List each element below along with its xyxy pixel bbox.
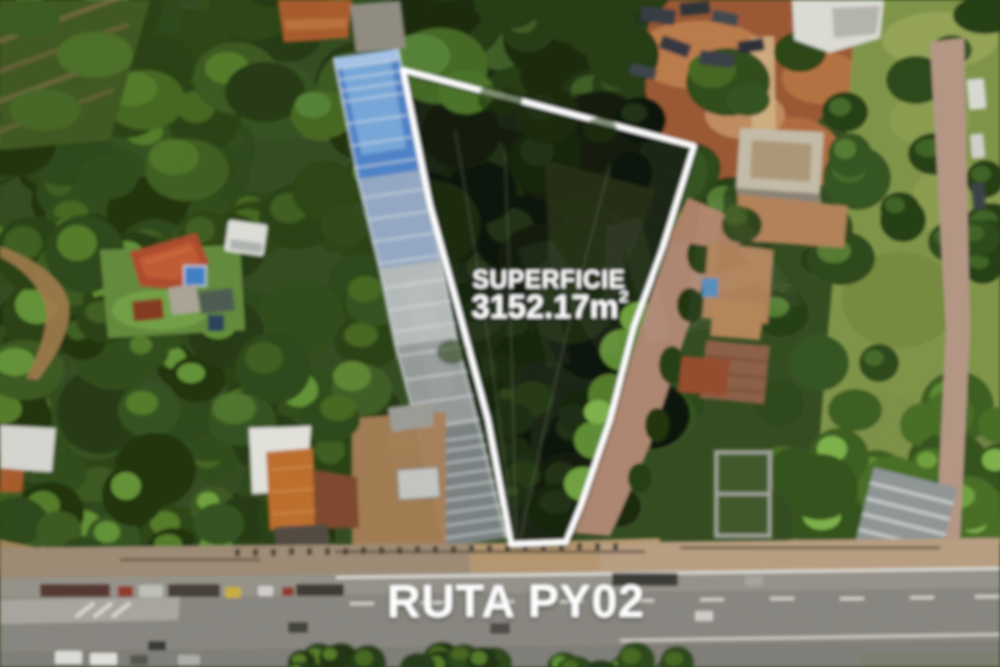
svg-text:2: 2 — [619, 287, 628, 306]
svg-text:3152.17m: 3152.17m — [472, 288, 619, 325]
svg-text:RUTA PY02: RUTA PY02 — [387, 575, 645, 627]
